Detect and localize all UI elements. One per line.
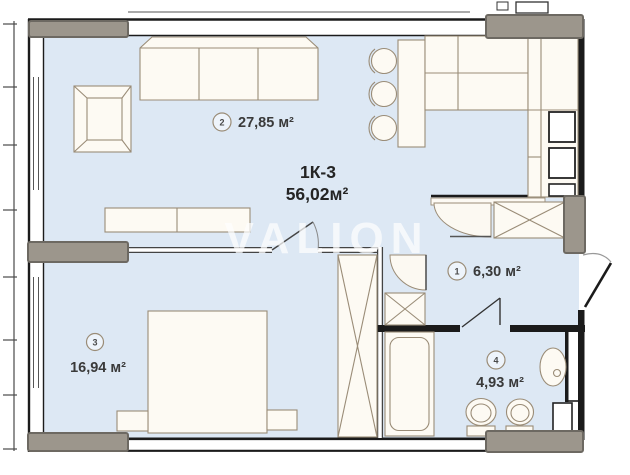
wardrobe-tall (338, 255, 377, 437)
bar-stools (369, 49, 396, 141)
plan-title-type: 1К-3 (300, 162, 336, 182)
bathroom-top-wall-right (510, 325, 585, 332)
duct-niche (553, 403, 572, 431)
plan-title-area: 56,02м² (286, 184, 349, 204)
bathroom-top-wall-left (377, 325, 460, 332)
top-edge-box-small (497, 2, 508, 10)
balcony-railing (3, 21, 17, 451)
floor-plan-drawing: VALION 2 27,85 м² 1 6,30 м² 3 16,94 м² 4… (0, 0, 630, 475)
appliance-oven (549, 112, 575, 142)
room-number: 2 (219, 118, 224, 128)
watermark: VALION (225, 214, 430, 263)
shaft-box (385, 293, 425, 325)
partition-bedroom-bathroom (377, 247, 383, 438)
room-area: 4,93 м² (476, 375, 524, 391)
label-living-room: 2 27,85 м² (213, 113, 294, 131)
sofa (140, 37, 318, 100)
appliance-shelf (549, 184, 575, 196)
gray-block-left-middle (28, 242, 128, 262)
gray-block-bottom-right (486, 431, 583, 452)
nightstand-left (117, 411, 148, 431)
gray-block-bottom-left (28, 433, 128, 451)
nightstand-right (267, 410, 297, 430)
label-hallway: 1 6,30 м² (448, 262, 521, 280)
appliance-fridge (549, 148, 575, 178)
bidet (506, 399, 534, 435)
gray-block-top-right (486, 15, 583, 38)
top-edge-box (516, 2, 548, 13)
room-number: 4 (493, 356, 498, 366)
gray-block-right (564, 196, 585, 253)
kitchen-bar-table (398, 40, 425, 147)
floor-plan: VALION 2 27,85 м² 1 6,30 м² 3 16,94 м² 4… (0, 0, 630, 475)
wardrobe-hallway (494, 202, 565, 238)
room-area: 6,30 м² (473, 264, 521, 280)
armchair (74, 86, 131, 152)
room-number: 3 (92, 338, 97, 348)
room-area: 16,94 м² (70, 360, 126, 376)
bathtub (385, 332, 434, 436)
gray-block-top-left (29, 21, 128, 37)
sink (540, 348, 566, 386)
entry-door (583, 254, 611, 307)
room-area: 27,85 м² (238, 115, 294, 131)
room-number: 1 (454, 267, 459, 277)
